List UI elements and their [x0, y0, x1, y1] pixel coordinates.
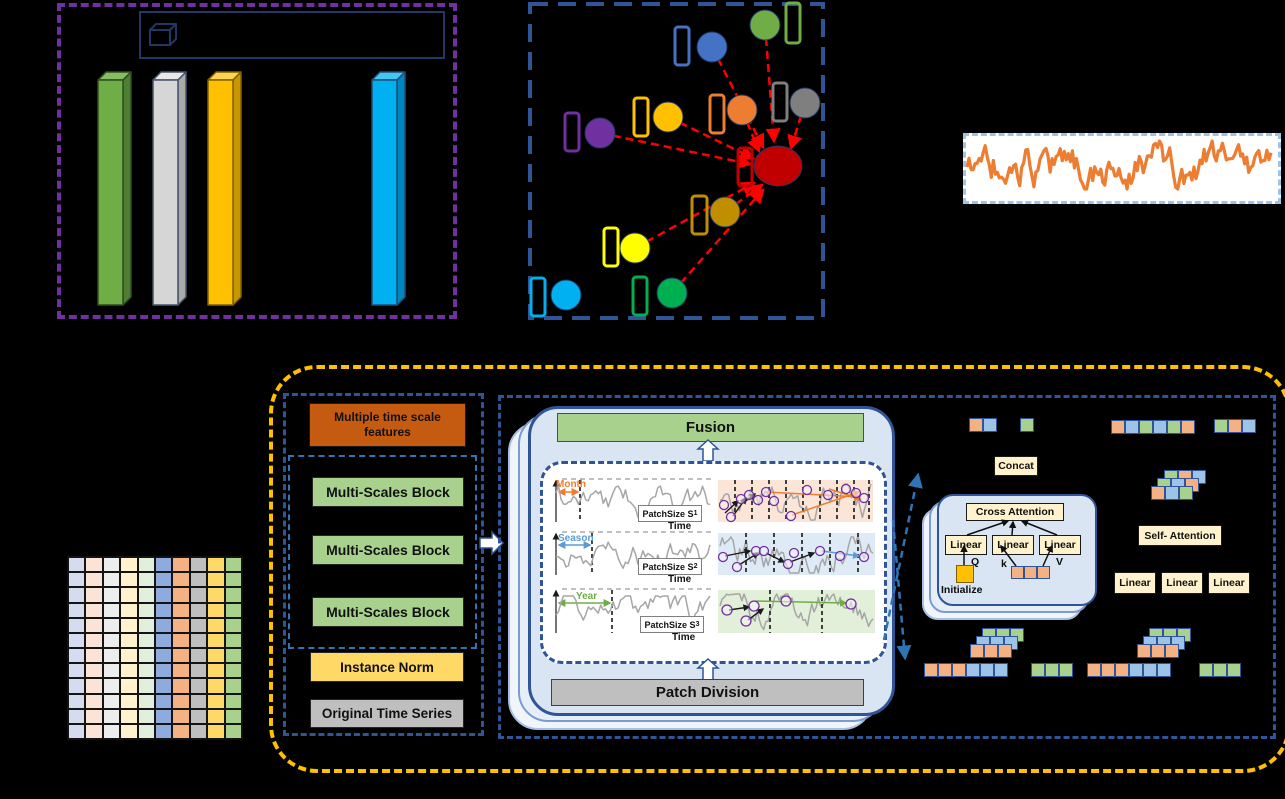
- paper-figure: Multiple time scale features Multi-Scale…: [0, 0, 1285, 799]
- node-purple: [585, 118, 615, 148]
- token-row: [1031, 663, 1073, 677]
- slot-gray: [773, 83, 787, 121]
- node-green: [750, 10, 780, 40]
- node-dark-green: [657, 278, 687, 308]
- up-arrow-icon: [698, 659, 718, 680]
- bar-cyan: [372, 72, 405, 305]
- node-dark-gold: [710, 197, 740, 227]
- fusion-block: Fusion: [557, 413, 864, 442]
- scale-node-graph: [528, 2, 825, 320]
- node-blue: [697, 32, 727, 62]
- month-label: Month: [556, 479, 586, 490]
- initialize-label: Initialize: [941, 584, 982, 596]
- v-label: V: [1056, 556, 1063, 568]
- linear-block-sa3: Linear: [1208, 572, 1250, 594]
- node-gold: [653, 102, 683, 132]
- token-row: [1151, 486, 1193, 500]
- node-yellow: [620, 233, 650, 263]
- token-row: [1011, 566, 1050, 579]
- concat-block: Concat: [994, 456, 1038, 476]
- slot-yellow: [604, 228, 618, 266]
- node-cyan: [551, 280, 581, 310]
- up-arrow-icon: [698, 440, 718, 461]
- k-label: k: [1001, 558, 1007, 570]
- token-row: [1199, 663, 1241, 677]
- slot-green: [786, 3, 800, 43]
- original-series-block: Original Time Series: [310, 699, 464, 728]
- year-label: Year: [576, 591, 597, 602]
- multi-timescale-header: Multiple time scale features: [309, 403, 466, 447]
- time-label-3: Time: [672, 632, 695, 643]
- multi-scales-block-2: Multi-Scales Block: [312, 535, 464, 565]
- slot-gold: [634, 98, 648, 136]
- node-gray: [790, 88, 820, 118]
- token-row: [1020, 418, 1034, 432]
- slot-blue: [675, 27, 689, 65]
- instance-norm-block: Instance Norm: [310, 652, 464, 682]
- initialize-token: [956, 565, 974, 583]
- panel-year: [718, 590, 875, 633]
- legend-box: [139, 11, 445, 59]
- time-label-2: Time: [668, 574, 691, 585]
- token-row: [969, 418, 997, 432]
- slot-purple: [565, 113, 579, 151]
- bars-3d: [90, 62, 410, 310]
- patch-division-block: Patch Division: [551, 679, 864, 706]
- token-row: [924, 663, 1008, 677]
- multi-scales-block-1: Multi-Scales Block: [312, 477, 464, 507]
- cube-icon: [148, 22, 182, 48]
- season-label: Season: [558, 533, 594, 544]
- token-row: [1087, 663, 1171, 677]
- linear-block-sa2: Linear: [1161, 572, 1203, 594]
- patchsize-s3-box: PatchSize S3: [640, 616, 704, 633]
- linear-block-sa1: Linear: [1114, 572, 1156, 594]
- zoom-link-arrows: [878, 455, 926, 670]
- self-attention-block: Self- Attention: [1138, 525, 1222, 546]
- multi-timescale-label: Multiple time scale features: [310, 410, 465, 440]
- token-row: [1214, 419, 1256, 433]
- node-orange: [727, 95, 757, 125]
- token-row: [970, 644, 1012, 658]
- patchsize-s1-box: PatchSize S1: [638, 505, 702, 522]
- patchsize-s2-box: PatchSize S2: [638, 558, 702, 575]
- multi-scales-block-3: Multi-Scales Block: [312, 597, 464, 627]
- node-red-center: [754, 146, 802, 186]
- slot-orange: [710, 95, 724, 133]
- patch-rows-art: [540, 462, 881, 658]
- slot-cyan: [531, 278, 545, 316]
- bar-gold: [208, 72, 241, 305]
- slot-dark-green: [633, 277, 647, 315]
- token-row: [1137, 644, 1179, 658]
- input-matrix: [67, 556, 243, 740]
- time-label-1: Time: [668, 521, 691, 532]
- bar-silver: [153, 72, 186, 305]
- raw-series-line: [963, 133, 1275, 198]
- bar-green: [98, 72, 131, 305]
- token-row: [1111, 420, 1195, 434]
